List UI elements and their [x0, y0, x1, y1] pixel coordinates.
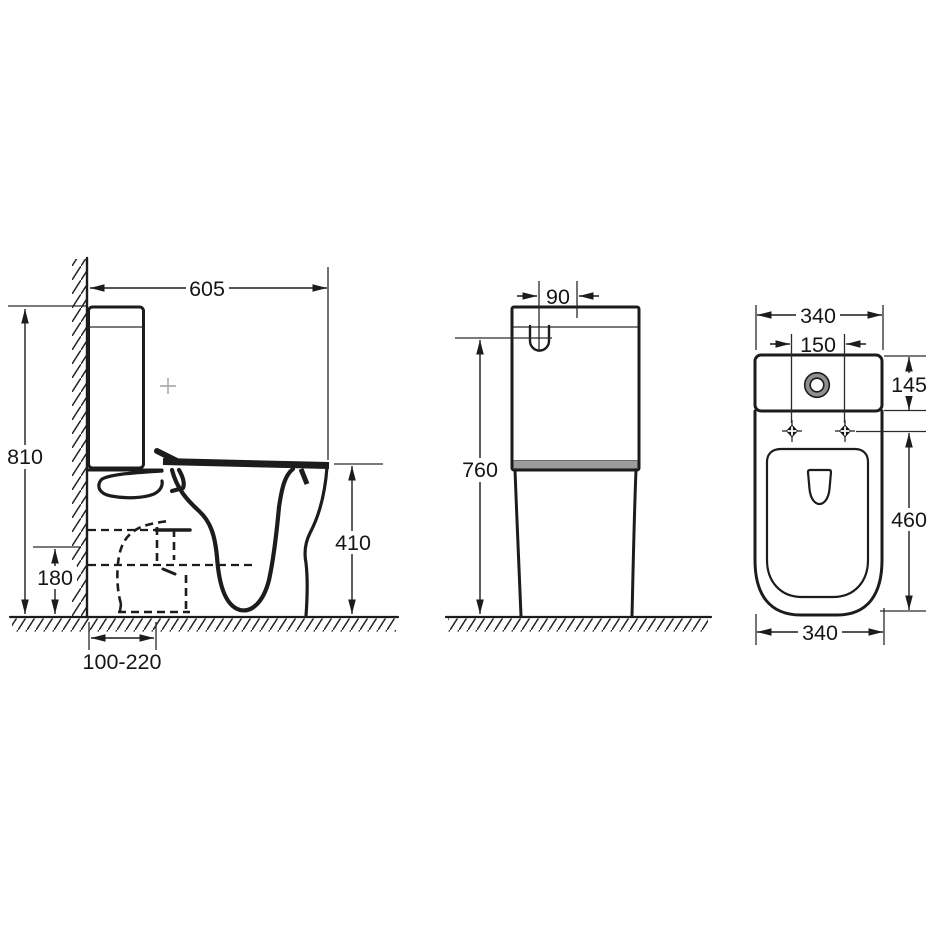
- bowl-interior-curve: [172, 469, 293, 610]
- fixing-hole-left: [782, 420, 802, 442]
- side-view: 605 810 410 180 100-220: [2, 258, 398, 674]
- floor-hatch-front: [448, 619, 708, 632]
- base-left-edge: [515, 470, 521, 616]
- dim-cistern-height-value: 760: [462, 458, 498, 482]
- top-view: 340 150 145 460 340: [755, 304, 928, 645]
- flush-button-plan: [805, 373, 830, 398]
- fixing-hole-right: [835, 420, 855, 442]
- dim-cistern-height: 760: [455, 338, 552, 614]
- seat-band-front: [514, 461, 638, 469]
- dim-seat-height-value: 410: [335, 531, 371, 555]
- seat-profile: [163, 462, 329, 466]
- dim-button-offset-value: 90: [546, 285, 570, 309]
- wall-hatch: [72, 259, 87, 617]
- dim-pan-length-value: 460: [891, 508, 927, 532]
- dim-cistern-depth-value: 145: [891, 373, 927, 397]
- dim-hole-spacing-value: 150: [800, 333, 836, 357]
- dim-seat-height: 410: [331, 464, 383, 614]
- dim-overall-width-value: 340: [800, 304, 836, 328]
- dim-base-width-value: 340: [802, 621, 838, 645]
- seat-bumper: [301, 469, 307, 484]
- seat-opening-outline: [767, 449, 868, 597]
- pan-back-underside: [99, 471, 162, 498]
- dim-outlet-height-value: 180: [37, 566, 73, 590]
- dim-cistern-depth: 145: [884, 356, 928, 411]
- dim-depth-value: 605: [189, 277, 225, 301]
- dimension-drawing: 605 810 410 180 100-220: [0, 0, 928, 928]
- cistern-plan-outline: [755, 355, 882, 411]
- trapway-dashed-left: [117, 521, 168, 604]
- trapway-dashed-inner: [157, 527, 174, 564]
- flush-button-inner: [810, 378, 824, 392]
- dim-depth: 605: [90, 267, 328, 460]
- crosshair-mark: [160, 378, 176, 394]
- cistern-side-outline: [89, 307, 144, 468]
- water-shield: [808, 470, 831, 504]
- front-view: 90 760: [446, 281, 711, 632]
- technical-drawing-canvas: 605 810 410 180 100-220: [0, 0, 928, 928]
- trapway-dashed-sides: [120, 575, 186, 611]
- dim-outlet-range-value: 100-220: [83, 650, 162, 674]
- base-right-edge: [632, 470, 636, 616]
- dim-height-value: 810: [7, 445, 43, 469]
- floor-hatch-side: [12, 619, 396, 632]
- trap-bend-mark: [163, 569, 175, 574]
- pan-front-outline: [305, 467, 327, 616]
